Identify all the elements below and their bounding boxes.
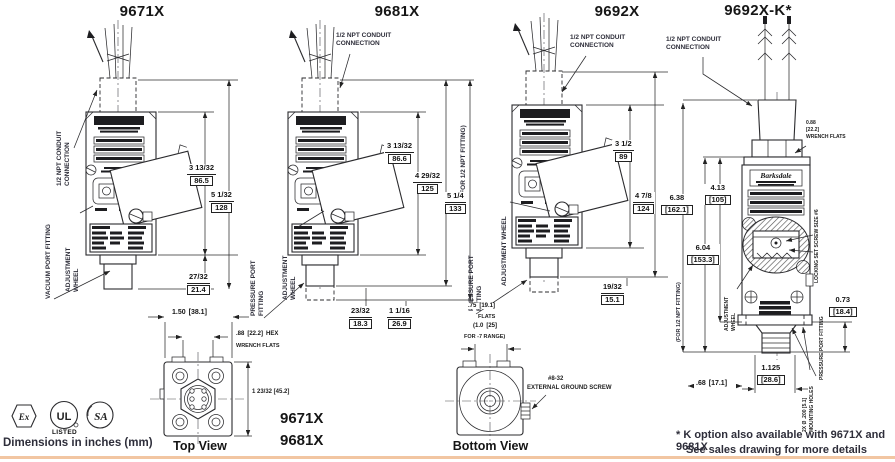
bottom-view-drawing [445, 344, 546, 441]
dim-d-9692xk: 0.73[18.4] [828, 296, 858, 317]
conduit-connection-label: 1/2 NPT CONDUIT CONNECTION [570, 34, 625, 50]
dim-f-9692xk: 1.125[28.6] [756, 364, 786, 385]
ground-screw-size: #8-32 [548, 375, 563, 383]
dim-body-height-9692x: 3 1/289 [612, 140, 635, 162]
brand-logo-text: Barksdale [752, 171, 800, 180]
product-title-9692x: 9692X [567, 3, 667, 20]
conduit-connection-label: 1/2 NPT CONDUIT CONNECTION [666, 36, 721, 52]
flats-dim: .75[19.1] [468, 303, 495, 309]
locking-set-screw-label: LOCKING SET SCREW SIZE #6 [814, 209, 821, 283]
product-title-9671x: 9671X [92, 3, 192, 20]
dim-c-9692xk: 6.04[153.3] [686, 244, 720, 265]
bottom-view-label: Bottom View [443, 439, 538, 453]
npt-fitting-note: (FOR 1/2 NPT FITTING) [460, 125, 468, 196]
device-9671x-drawing [54, 20, 238, 299]
adjustment-wheel-label: ADJUSTMENT WHEEL [501, 216, 509, 286]
range-word: FOR -7 RANGE) [464, 334, 505, 341]
dim-thread-9681x: 23/3218.3 [348, 307, 373, 329]
npt-fitting-note: (FOR 1/2 NPT FITTING) [676, 282, 683, 342]
dim-body-height-9671x: 3 13/3286.5 [186, 164, 217, 186]
conduit-fitting [758, 100, 796, 140]
ground-screw-label: EXTERNAL GROUND SCREW [527, 384, 612, 392]
dim-port-length-9671x: 27/3221.4 [186, 273, 211, 295]
conduit-connection-label: 1/2 NPT CONDUIT CONNECTION [56, 131, 72, 186]
dim-body-height-9681x: 3 13/3286.6 [384, 142, 415, 164]
pressure-port-label: PRESSURE PORT FITTING [250, 260, 266, 316]
dim-port-9681x: 1 1/1626.9 [386, 307, 413, 329]
product-title-9681x: 9681X [347, 3, 447, 20]
footnote-line2: See sales drawing for more details [686, 444, 867, 456]
wrench-flats-label: 0.88 [22.2] WRENCH FLATS [806, 120, 846, 140]
drawing-linework: Ex UL SA [0, 0, 895, 462]
pressure-port [302, 255, 338, 265]
dim-port-9692x: 19/3215.1 [600, 283, 625, 305]
top-view-width-dim: 1.50[38.1] [172, 309, 207, 316]
pressure-port-label: PRESSURE PORT FITTING [819, 316, 826, 380]
dim-e-9692xk: .68[17.1] [696, 380, 727, 387]
mounting-base [738, 315, 812, 325]
vacuum-port-label: VACUUM PORT FITTING [45, 224, 53, 299]
pressure-port [756, 325, 796, 333]
product-title-9692xk: 9692X-K* [698, 2, 818, 19]
mounting-holes-label: 2X Ø .200 [5.1] MOUNTING HOLES [802, 386, 815, 432]
wrench-flats-label: WRENCH FLATS [236, 343, 280, 350]
orange-rule [0, 456, 895, 459]
model-9681x-ref: 9681X [280, 432, 323, 449]
dim-total-height-9681x: 5 1/4133 [444, 192, 467, 214]
adjustment-wheel-label: ADJUSTMENT WHEEL [65, 248, 81, 292]
dim-a-9692xk: 6.38[162.1] [660, 194, 694, 215]
dim-mid-height-9681x: 4 29/32125 [412, 172, 443, 194]
dim-total-height-9692x: 4 7/8124 [632, 192, 655, 214]
flats-word: FLATS [478, 314, 495, 321]
certification-marks: Ex UL SA [12, 402, 113, 429]
model-9671x-ref: 9671X [280, 410, 323, 427]
dim-b-9692xk: 4.13[105] [704, 184, 732, 205]
ul-mark-text: UL [57, 411, 72, 423]
hex-dim: .88[22.2]HEX [236, 331, 278, 337]
vacuum-port [100, 255, 136, 264]
top-view-label: Top View [155, 439, 245, 453]
adjustment-wheel-label: ADJUSTMENT WHEEL [724, 297, 737, 331]
adjustment-wheel-label: ADJUSTMENT WHEEL [282, 256, 298, 300]
top-view-height-dim: 1 23/32 [45.2] [252, 388, 289, 396]
pressure-port [526, 248, 562, 258]
dim-total-height-9671x: 5 1/32128 [208, 191, 235, 213]
conduit-connection-label: 1/2 NPT CONDUIT CONNECTION [336, 32, 391, 48]
datasheet-canvas: Ex UL SA 9671X 9681X 9692X 9692X-K* 1/2 … [0, 0, 895, 462]
csa-mark-text: SA [94, 411, 107, 423]
ul-listed-text: LISTED [49, 429, 80, 436]
hex-nut [752, 140, 802, 157]
dimensions-note: Dimensions in inches (mm) [3, 437, 153, 449]
ex-mark-text: Ex [18, 412, 30, 422]
range-dim: (1.0[25] [473, 323, 497, 329]
